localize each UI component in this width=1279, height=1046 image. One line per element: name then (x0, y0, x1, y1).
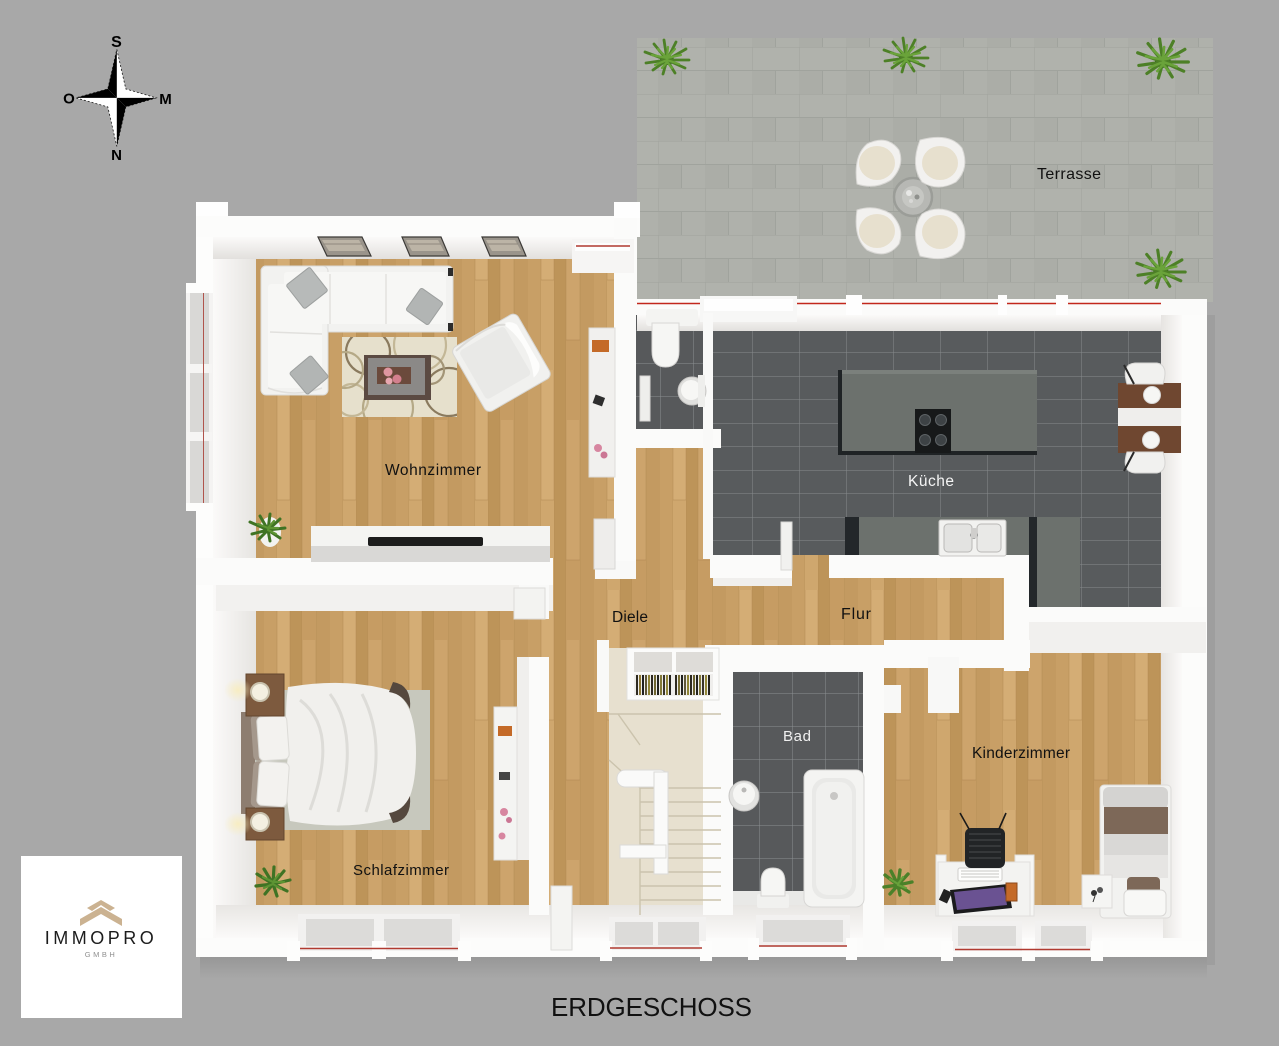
svg-text:Kinderzimmer: Kinderzimmer (972, 745, 1070, 762)
svg-text:S: S (111, 34, 122, 51)
svg-text:O: O (63, 91, 75, 108)
svg-text:IMMOPRO: IMMOPRO (45, 928, 158, 948)
svg-text:Diele: Diele (612, 609, 648, 626)
svg-text:M: M (159, 91, 172, 108)
svg-text:Küche: Küche (908, 473, 954, 490)
svg-text:Wohnzimmer: Wohnzimmer (385, 462, 481, 479)
svg-text:ERDGESCHOSS: ERDGESCHOSS (551, 992, 752, 1022)
svg-text:Terrasse: Terrasse (1037, 166, 1101, 183)
svg-text:N: N (111, 147, 122, 164)
svg-text:GMBH: GMBH (85, 950, 118, 959)
svg-text:Schlafzimmer: Schlafzimmer (353, 862, 449, 879)
svg-text:Flur: Flur (841, 606, 872, 623)
svg-text:Bad: Bad (783, 728, 811, 745)
